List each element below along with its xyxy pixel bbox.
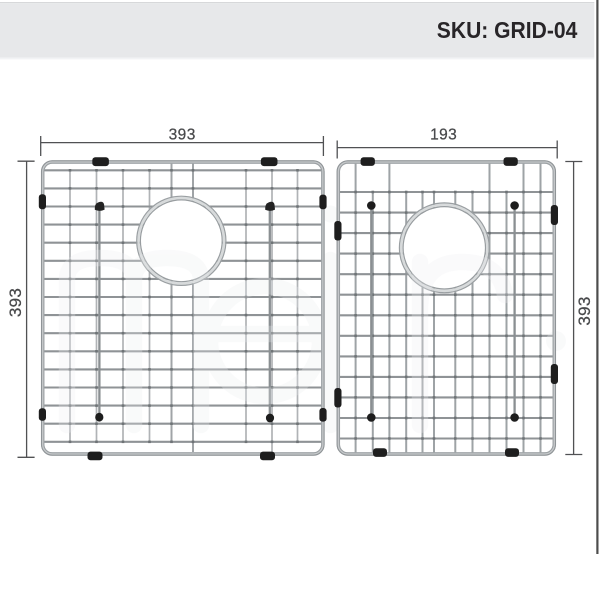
svg-text:393: 393 <box>169 127 196 144</box>
svg-text:393: 393 <box>6 288 25 317</box>
svg-text:SKU: GRID-04: SKU: GRID-04 <box>437 17 578 43</box>
svg-text:393: 393 <box>575 296 594 325</box>
svg-text:193: 193 <box>430 126 457 143</box>
